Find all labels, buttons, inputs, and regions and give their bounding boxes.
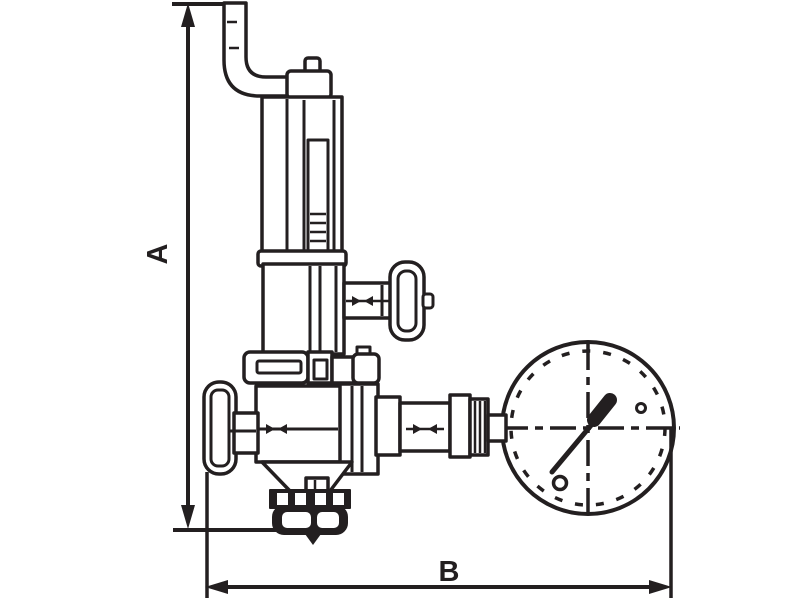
inlet-pipe-elbow	[224, 3, 288, 96]
bonnet-tube	[262, 97, 342, 254]
dimension-b-label: B	[439, 556, 460, 588]
bottom-outlet	[262, 462, 352, 545]
spring-bonnet-column	[258, 58, 346, 354]
adjusting-screw-cap	[287, 71, 331, 98]
gauge-needle-hub	[554, 477, 567, 490]
connector-hex-nut-2	[450, 395, 470, 457]
inlet-stem	[234, 413, 258, 453]
dimension-a-label: A	[142, 243, 174, 264]
gauge-needle	[552, 400, 646, 490]
outlet-handwheel-stem-tip	[423, 294, 433, 308]
body-main	[256, 386, 340, 462]
adjusting-stem	[308, 140, 328, 252]
connector-hex-nut	[376, 397, 400, 455]
outlet-branch	[344, 262, 433, 340]
dimension-a-arrow-up	[181, 3, 195, 27]
valve-dimension-drawing: A B	[0, 0, 800, 598]
gauge-connector	[376, 395, 506, 457]
flow-direction-arrow	[305, 534, 321, 545]
drawing-svg: A B	[0, 0, 800, 598]
gauge-set-pointer-dot	[637, 404, 646, 413]
gauge-stem	[488, 415, 506, 441]
bonnet-flange	[244, 347, 379, 383]
connector-body	[400, 403, 450, 451]
spring-housing	[263, 264, 344, 354]
inlet-handwheel	[204, 382, 258, 474]
dimension-a-arrow-down	[181, 505, 195, 529]
dimension-b-arrow-right	[649, 580, 672, 594]
